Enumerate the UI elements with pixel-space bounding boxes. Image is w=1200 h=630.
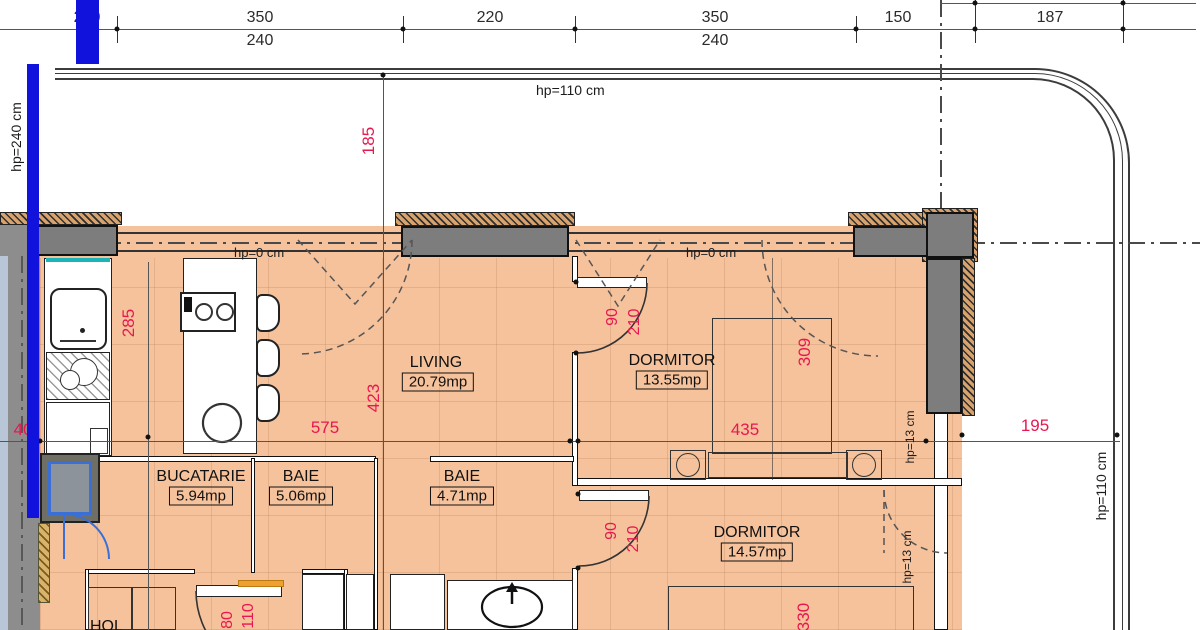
red-dim-309: 309	[795, 338, 815, 366]
nightstand-left-circle	[676, 453, 700, 477]
wall-dorm1-dorm2	[577, 478, 962, 486]
dim-line-mid	[0, 441, 1120, 442]
burner-1	[195, 303, 213, 321]
right-wall-pier	[926, 258, 962, 414]
dim-187: 187	[1026, 9, 1074, 27]
hp-0-left: hp=0 cm	[234, 245, 284, 260]
floor-plan: 187 240 350 220 350 150 187 240 240 hp=1…	[0, 0, 1200, 630]
bar-chair-1	[256, 294, 280, 332]
stove-knob-strip	[184, 297, 192, 312]
left-facade-strip	[0, 256, 8, 630]
red-door1-90: 90	[604, 308, 622, 326]
dim-150: 150	[874, 9, 922, 27]
counter-pot-circle-2	[60, 370, 80, 390]
wall-pier-a	[28, 225, 118, 256]
kitchen-island	[183, 258, 257, 454]
red-door1-210: 210	[626, 309, 644, 336]
dim-dot	[960, 433, 965, 438]
right-wall-hatch	[962, 258, 975, 416]
dim-line-row1	[0, 29, 1196, 30]
dim-dot	[568, 439, 573, 444]
dim-187-cut: 187	[1028, 0, 1072, 4]
red-dim-195: 195	[1021, 416, 1049, 436]
dim-350-b: 350	[683, 9, 747, 27]
red-door2-90: 90	[603, 522, 621, 540]
hall-wall-1	[85, 569, 195, 574]
dim-240-b: 240	[228, 32, 292, 50]
room-label-dormitor1: DORMITOR	[629, 352, 716, 370]
left-wall-axis	[21, 256, 23, 630]
window-line-1a	[118, 232, 403, 234]
window-line-2a	[567, 232, 855, 234]
red-dim-330: 330	[794, 603, 814, 630]
red-dim-575: 575	[311, 418, 339, 438]
dim-dot	[924, 439, 929, 444]
tick	[1123, 0, 1124, 43]
room-area-dormitor2: 14.57mp	[721, 543, 793, 562]
hp-13-upper: hp=13 cm	[903, 410, 917, 463]
dim-240-c: 240	[683, 32, 747, 50]
dim-line-v148	[148, 262, 149, 630]
shaft-window	[48, 461, 92, 515]
door-leaf-dorm1	[577, 277, 647, 288]
red-hall-80: 80	[219, 611, 237, 629]
counter-teal-edge	[46, 258, 110, 262]
window-projection-line	[772, 258, 773, 480]
section-line-top	[76, 0, 99, 64]
wardrobe-2	[132, 587, 176, 630]
partition-bucatarie-baie	[251, 458, 255, 573]
red-hall-110: 110	[240, 603, 258, 629]
room-area-dormitor1: 13.55mp	[636, 371, 708, 390]
hp-240-left: hp=240 cm	[8, 102, 24, 172]
section-line	[27, 64, 39, 518]
room-label-bucatarie: BUCATARIE	[156, 468, 245, 486]
dim-dot	[854, 27, 859, 32]
axis-line-horizontal	[40, 242, 1200, 244]
right-partition-lower	[934, 414, 948, 630]
dim-dot	[574, 280, 579, 285]
dim-dot	[401, 27, 406, 32]
bed-dorm2	[668, 586, 914, 630]
insulation-hatch-b	[395, 212, 575, 226]
washer-box-1	[302, 574, 344, 630]
dim-dot	[1115, 433, 1120, 438]
red-dim-435: 435	[731, 420, 759, 440]
dim-dot	[973, 27, 978, 32]
hp-110-top: hp=110 cm	[536, 82, 605, 98]
room-area-bucatarie: 5.94mp	[169, 487, 233, 506]
washbasin-counter	[447, 580, 573, 630]
dim-dot	[381, 73, 386, 78]
room-label-dormitor2: DORMITOR	[714, 524, 801, 542]
hp-110-right: hp=110 cm	[1093, 452, 1109, 521]
red-dim-423: 423	[364, 384, 384, 412]
insulation-hatch-a	[0, 212, 122, 225]
room-label-hol: HOL	[90, 618, 123, 630]
dim-dot	[573, 27, 578, 32]
bar-chair-2	[256, 339, 280, 377]
washer-box-2	[346, 574, 374, 630]
axis-line-vertical	[940, 0, 942, 214]
hp-0-right: hp=0 cm	[686, 245, 736, 260]
wall-pier-b	[401, 226, 569, 257]
wall-kitchen-bath-2	[430, 456, 574, 462]
dim-dot	[576, 439, 581, 444]
hp-13-lower: hp=13 cm	[900, 530, 914, 583]
door-leaf-dorm2	[579, 490, 649, 501]
dim-line-v383	[383, 73, 384, 630]
tick	[975, 0, 976, 43]
dim-dot	[576, 566, 581, 571]
door-leaf-hatched	[38, 523, 50, 603]
shower-box	[390, 574, 445, 630]
dim-dot	[574, 351, 579, 356]
bar-chair-3	[256, 384, 280, 422]
room-label-baie1: BAIE	[283, 468, 319, 486]
room-area-baie2: 4.71mp	[430, 487, 494, 506]
room-area-baie1: 5.06mp	[269, 487, 333, 506]
corner-pier	[926, 212, 974, 258]
red-dim-285: 285	[119, 309, 139, 337]
dim-dot	[1121, 27, 1126, 32]
room-label-baie2: BAIE	[444, 468, 480, 486]
partition-baie1-baie2	[374, 458, 378, 630]
burner-2	[216, 303, 234, 321]
sink-drain-dot	[80, 328, 85, 333]
red-dim-185: 185	[359, 127, 379, 155]
dim-dot	[973, 1, 978, 6]
bed-bench	[708, 452, 848, 478]
dim-220: 220	[458, 9, 522, 27]
room-area-living: 20.79mp	[402, 373, 474, 392]
nightstand-right-circle	[852, 453, 876, 477]
sink-front-line	[60, 340, 96, 342]
red-door2-210: 210	[625, 526, 643, 553]
room-label-living: LIVING	[410, 354, 462, 372]
partition-living-dorm-2	[572, 352, 578, 486]
dim-dot	[115, 27, 120, 32]
dim-350-a: 350	[228, 9, 292, 27]
dim-dot	[146, 435, 151, 440]
dim-dot	[576, 492, 581, 497]
door-marker-orange	[238, 580, 284, 587]
dim-dot	[1121, 1, 1126, 6]
